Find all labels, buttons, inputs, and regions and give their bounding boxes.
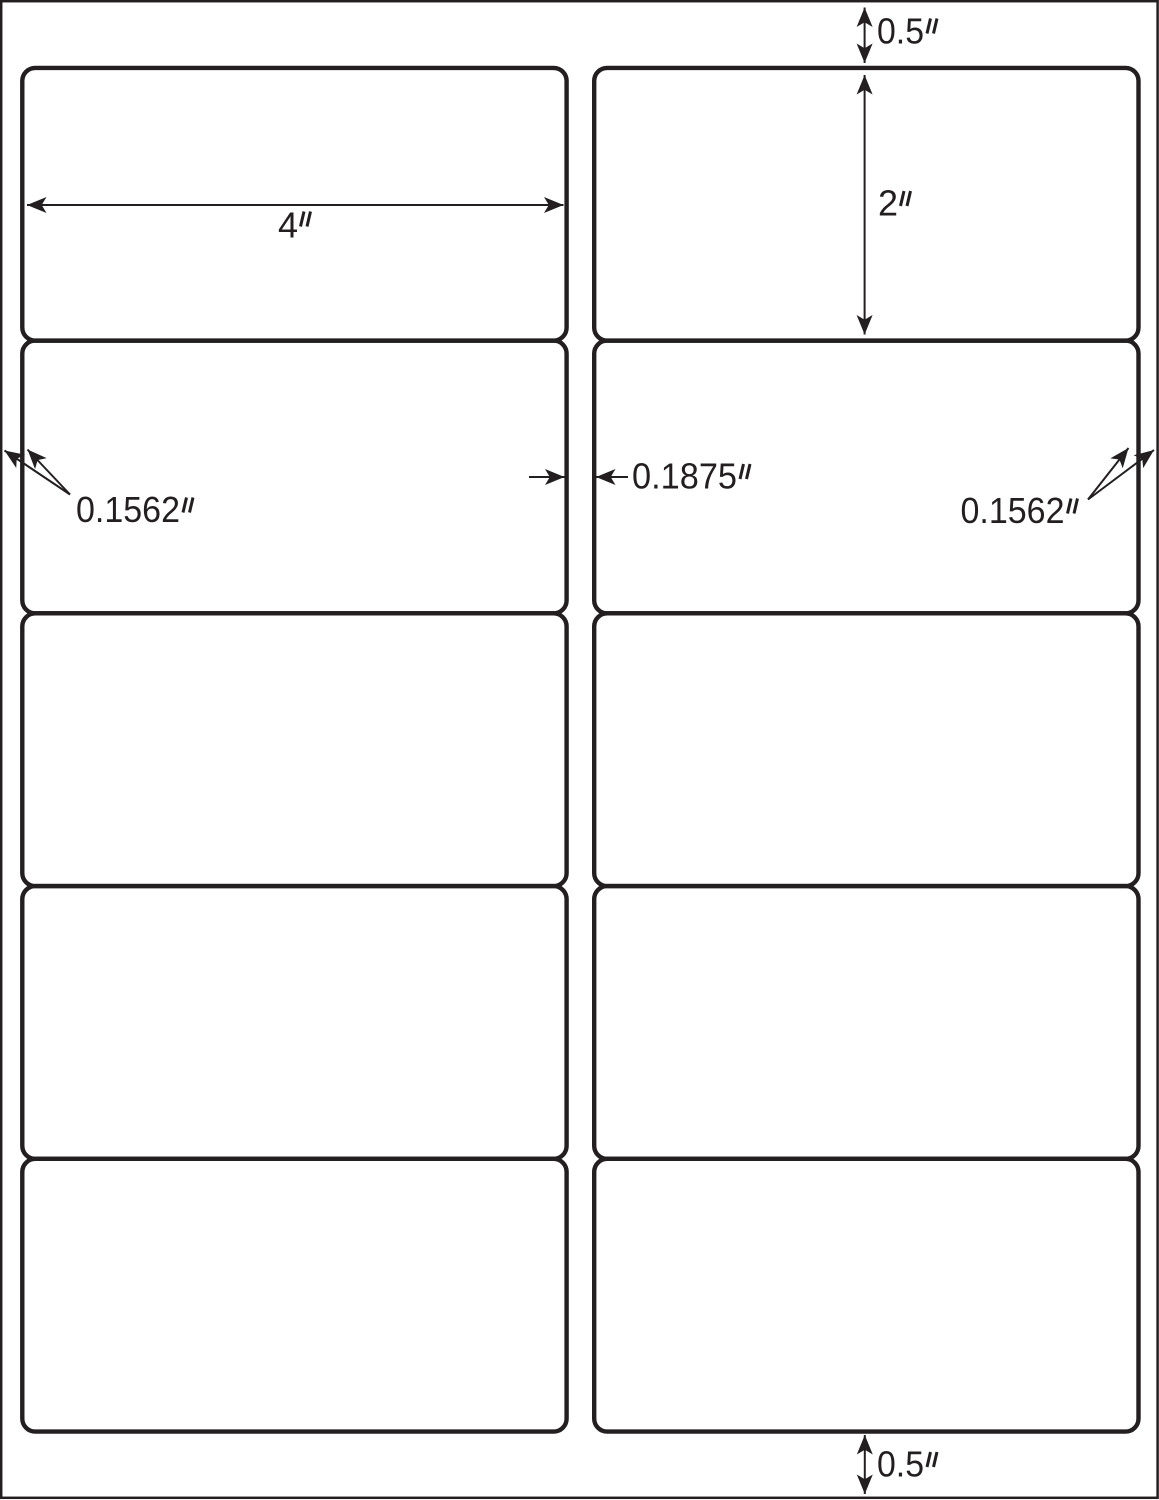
svg-text:0.1875: 0.1875	[632, 455, 737, 496]
svg-text:0.1562: 0.1562	[76, 489, 180, 530]
svg-text:2: 2	[878, 183, 898, 224]
svg-text:4: 4	[278, 205, 298, 246]
svg-text:0.5: 0.5	[877, 10, 924, 51]
svg-text:0.5: 0.5	[877, 1444, 924, 1485]
svg-text:0.1562: 0.1562	[961, 490, 1065, 531]
